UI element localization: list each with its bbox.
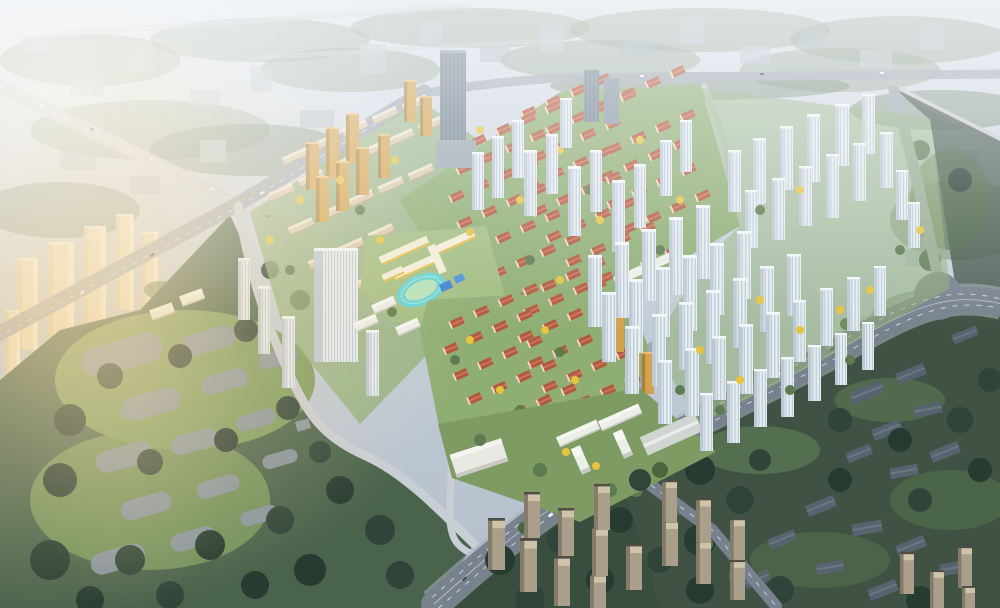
aerial-render-canvas <box>0 0 1000 608</box>
masterplan-illustration <box>0 0 1000 608</box>
